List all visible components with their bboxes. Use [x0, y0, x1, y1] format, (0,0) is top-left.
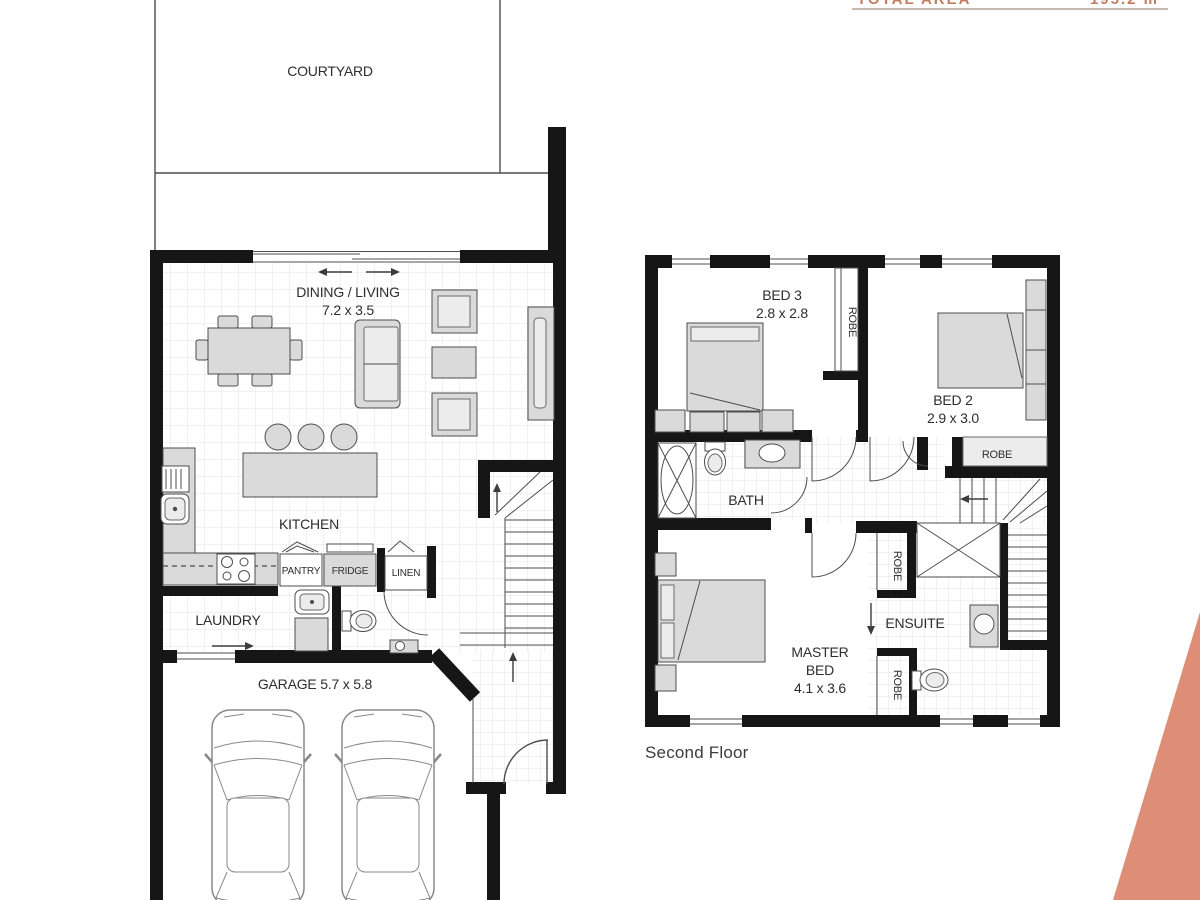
- bed3-label: BED 3: [762, 287, 802, 303]
- master-label-2: BED: [806, 662, 834, 678]
- sofa: [355, 320, 400, 408]
- armchairs: [432, 290, 477, 436]
- linen-label: LINEN: [392, 568, 420, 579]
- courtyard-label: COURTYARD: [287, 63, 373, 79]
- master-bedside-2: [655, 665, 676, 691]
- laundry-window: [177, 653, 235, 659]
- pantry-label: PANTRY: [282, 566, 321, 577]
- courtyard-wall: [548, 127, 566, 257]
- wc-toilet: [342, 611, 376, 632]
- dining-living-dims: 7.2 x 3.5: [322, 302, 374, 318]
- accent-triangle: [1113, 612, 1200, 900]
- bath-shower: [658, 443, 696, 518]
- garage-entry-diagonal-wall: [434, 653, 475, 697]
- bed2-label: BED 2: [933, 392, 973, 408]
- bath-vanity: [745, 440, 800, 468]
- ensuite-vanity: [970, 605, 998, 647]
- bed3-robe-label: ROBE: [846, 307, 858, 337]
- bed2-wardrobe: [1026, 280, 1046, 420]
- master-label-1: MASTER: [791, 644, 848, 660]
- kitchen-label: KITCHEN: [279, 516, 339, 532]
- master-dims: 4.1 x 3.6: [794, 680, 846, 696]
- master-room: MASTER BED 4.1 x 3.6 ROBE ROBE: [655, 533, 903, 715]
- kitchen-sink: [161, 466, 189, 524]
- bed3-robe: ROBE: [835, 268, 858, 371]
- master-robe-upper-label: ROBE: [891, 551, 903, 581]
- ground-floor-plan: COURTYARD: [150, 0, 566, 900]
- fridge-label: FRIDGE: [332, 566, 369, 577]
- bed2-dims: 2.9 x 3.0: [927, 410, 979, 426]
- car-2: [335, 710, 441, 900]
- bath-label: BATH: [728, 492, 764, 508]
- floorplan-canvas: TOTAL AREA 195.2 m² COURTYARD: [0, 0, 1200, 900]
- laundry-label: LAUNDRY: [195, 612, 261, 628]
- garage: GARAGE 5.7 x 5.8: [205, 676, 441, 900]
- cooktop: [217, 554, 255, 584]
- kitchen-island: [243, 453, 377, 497]
- courtyard: COURTYARD: [155, 0, 566, 257]
- bath-toilet: [705, 442, 726, 475]
- washing-machine: [295, 618, 328, 651]
- bed3-bed: [687, 323, 763, 411]
- bed3-dims: 2.8 x 2.8: [756, 305, 808, 321]
- header: TOTAL AREA 195.2 m²: [852, 0, 1168, 9]
- ensuite-label: ENSUITE: [885, 615, 944, 631]
- bed3-dresser: [655, 410, 793, 432]
- ensuite-toilet: [912, 669, 948, 691]
- floorplan-page: TOTAL AREA 195.2 m² COURTYARD: [0, 0, 1200, 900]
- total-area-label: TOTAL AREA: [857, 0, 971, 8]
- laundry-tap: [310, 600, 314, 604]
- bed2-bed: [938, 313, 1023, 388]
- wc-basin: [390, 640, 418, 653]
- master-robe-lower-label: ROBE: [891, 670, 903, 700]
- dining-living-label: DINING / LIVING: [296, 284, 400, 300]
- car-1: [205, 710, 311, 900]
- total-area-value: 195.2 m²: [1090, 0, 1166, 8]
- bed2-robe-label: ROBE: [982, 449, 1012, 461]
- tv-unit: [528, 307, 554, 420]
- garage-label: GARAGE 5.7 x 5.8: [258, 676, 373, 692]
- master-door-arc: [812, 533, 856, 577]
- master-bedside-1: [655, 553, 676, 576]
- second-floor-plan: BED 3 2.8 x 2.8 ROBE BED 2: [645, 255, 1060, 762]
- second-floor-label: Second Floor: [645, 743, 749, 762]
- pendant-lights: [265, 424, 357, 450]
- ensuite-shower: [917, 523, 1000, 577]
- master-bed: [658, 580, 765, 662]
